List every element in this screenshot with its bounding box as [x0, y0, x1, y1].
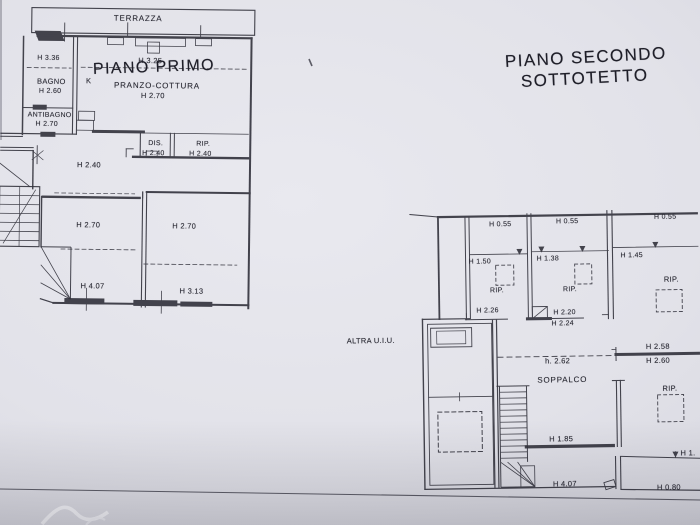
label-corridoio-h: H 2.40 — [77, 161, 101, 169]
label-rip-h: H 2.40 — [189, 151, 212, 158]
label-rip-dx: RIP. — [662, 385, 677, 393]
label-c2-mid: H 1.38 — [537, 255, 560, 262]
label-k: K — [86, 77, 91, 85]
plan-primo-drawing — [0, 0, 292, 337]
plan-secondo-drawing — [328, 192, 700, 519]
label-antibagno: ANTIBAGNO — [28, 112, 72, 120]
label-h313: H 3.13 — [179, 287, 203, 295]
label-c2-rip: RIP. — [563, 286, 577, 293]
label-antibagno-h: H 2.70 — [35, 121, 58, 128]
label-rip: RIP. — [196, 141, 210, 148]
label-c2-low2: H 2.24 — [551, 320, 574, 327]
plan-secondo-stairs — [496, 386, 534, 488]
label-c3-mid: H 1.45 — [620, 252, 643, 259]
label-camera-sx-h: H 2.70 — [76, 221, 100, 229]
label-h258: H 2.58 — [646, 343, 670, 351]
label-dis: DIS. — [148, 140, 163, 147]
label-h262: h. 2.62 — [545, 357, 570, 365]
label-c2-low: H 2.20 — [553, 309, 576, 316]
plan-piano-secondo: ALTRA U.I.U. H 0.55 H 0.55 H 0.55 H 1.50… — [328, 192, 700, 519]
label-camera-dx-h: H 2.70 — [172, 222, 196, 230]
label-h407: H 4.07 — [81, 282, 105, 290]
plan-primo-walls — [0, 7, 255, 314]
label-altra-uiu: ALTRA U.I.U. — [347, 337, 395, 345]
label-h260: H 2.60 — [646, 357, 670, 365]
label-pranzo-h: H 2.70 — [141, 92, 165, 100]
label-bagno-h: H 2.60 — [39, 88, 62, 95]
label-dis-h: H 2.40 — [142, 150, 165, 157]
label-h080: H 0.80 — [657, 484, 681, 492]
label-c1-top: H 0.55 — [489, 221, 512, 228]
label-h336: H 3.36 — [37, 55, 60, 62]
label-bagno: BAGNO — [37, 78, 66, 86]
label-c1-low: H 2.26 — [476, 307, 499, 314]
label-c1-rip: RIP. — [490, 287, 504, 294]
label-terrazza: TERRAZZA — [114, 15, 163, 24]
label-h407-dx: H 4.07 — [553, 480, 577, 488]
label-c1-mid: H 1.50 — [469, 258, 492, 265]
label-c2-top: H 0.55 — [556, 218, 579, 225]
label-c3-rip: RIP. — [664, 276, 679, 284]
label-h185: H 1.85 — [549, 435, 573, 443]
label-c3-top: H 0.55 — [654, 214, 677, 221]
floor-plan-photo: TERRAZZA H 3.36 BAGNO H 2.60 K H 3.25 PR… — [0, 0, 700, 525]
plan-secondo-walls — [410, 209, 700, 494]
plan-primo-stairs — [0, 186, 72, 299]
plan-piano-primo: TERRAZZA H 3.36 BAGNO H 2.60 K H 3.25 PR… — [0, 0, 292, 337]
label-pranzo: PRANZO-COTTURA — [114, 82, 200, 91]
label-soppalco: SOPPALCO — [537, 376, 587, 385]
label-h1-cut: H 1. — [680, 449, 695, 457]
